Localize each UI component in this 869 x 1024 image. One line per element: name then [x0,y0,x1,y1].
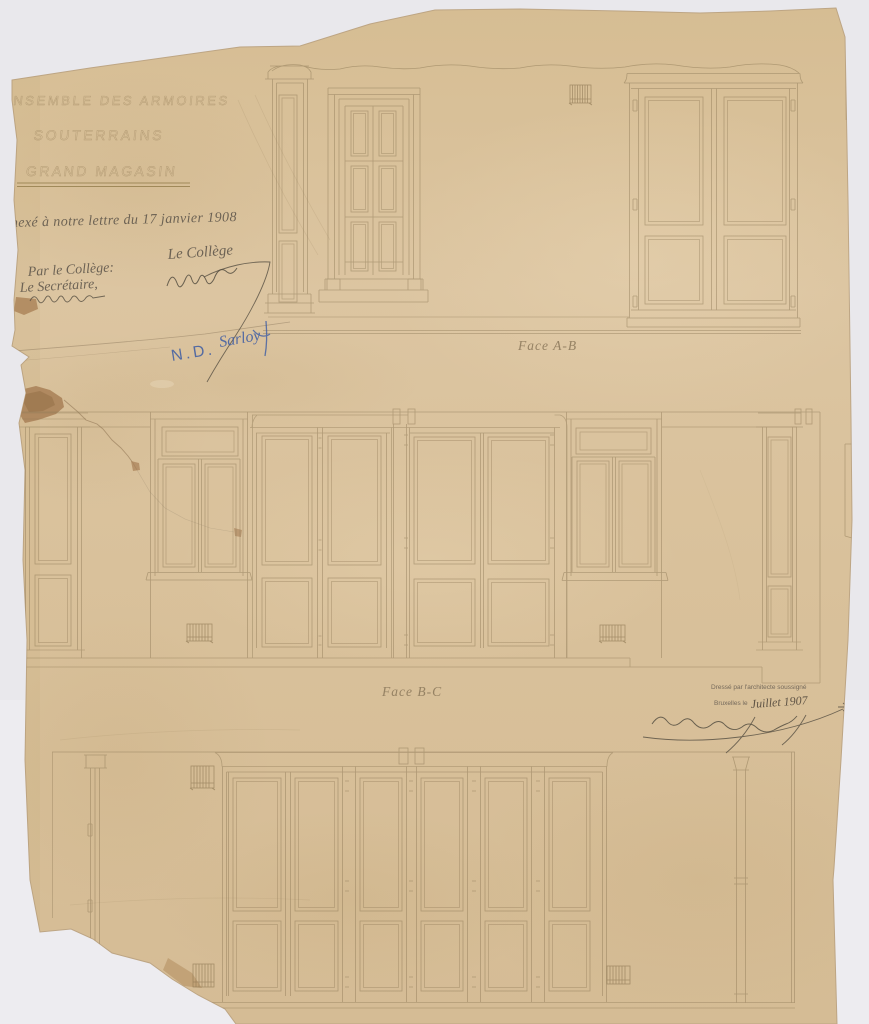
svg-text:SOUTERRAINS: SOUTERRAINS [33,127,165,143]
svg-text:Face A-B: Face A-B [517,338,577,353]
svg-text:Face B-C: Face B-C [381,684,442,699]
svg-text:GRAND MAGASIN: GRAND MAGASIN [25,163,178,179]
svg-text:NSEMBLE DES ARMOIRES: NSEMBLE DES ARMOIRES [13,93,231,108]
svg-text:Dressé par l'architecte soussi: Dressé par l'architecte soussigné [711,684,807,691]
svg-text:Bruxelles le: Bruxelles le [714,700,748,707]
